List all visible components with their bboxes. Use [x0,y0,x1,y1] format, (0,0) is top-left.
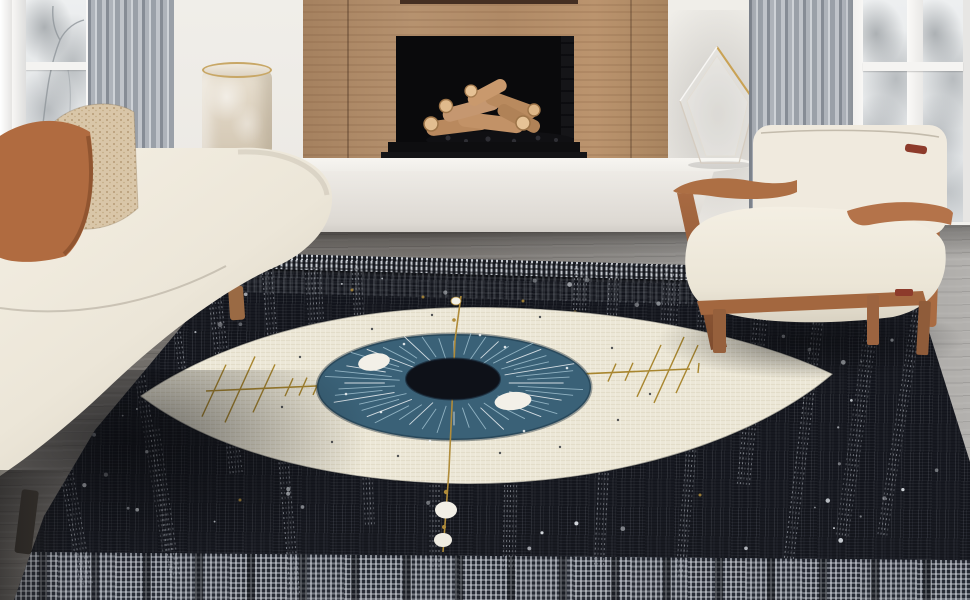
rug-star [533,279,537,283]
chair-rear-right-leg [916,301,931,356]
iris-dot [429,440,432,443]
wood-panel-seam [630,0,632,163]
iris-dot [523,430,526,433]
pupil [406,359,500,400]
cream-speck [649,393,651,395]
vase-gold-rim [202,62,272,78]
fireplace-top-trim [400,0,578,4]
rug-star [567,282,572,287]
cream-speck [559,446,561,448]
rug-star [620,526,625,531]
rug-star [574,521,578,525]
cream-speck [431,314,433,316]
cream-speck [499,452,501,454]
rug-star [935,468,939,472]
rug-star [585,277,590,282]
firebox [396,36,574,150]
window-right-bar [863,62,963,71]
armchair [635,95,970,375]
chair-front-right-leg [867,295,879,345]
cream-speck [371,328,373,330]
gold-fleck [699,494,702,497]
rug-star [838,462,841,465]
living-room-scene [0,0,970,600]
log-pile [424,77,542,137]
cream-speck [539,316,541,318]
rug-star [882,496,886,500]
rug-star [527,546,531,550]
rug-star [540,531,543,534]
rug-star [860,515,862,517]
cream-speck [397,455,399,457]
rug-star [443,290,447,294]
iris-dot [403,343,406,346]
rug-star [833,527,835,529]
firewood-logs [396,36,574,150]
rug-star [901,488,904,491]
cream-speck [617,419,619,421]
rug-star [826,498,830,502]
rug-star [838,538,843,543]
iris-dot [479,334,482,337]
gold-fleck [522,300,525,303]
rug-star [381,278,383,280]
corner-shadow [0,470,70,600]
iris-dot [566,367,569,370]
chair-red-accent [895,289,913,296]
rug-star [850,399,853,402]
cream-speck [611,347,613,349]
rug-star [837,426,839,428]
gold-fleck [422,296,425,299]
iris-dot [504,346,507,349]
rug-star [426,501,430,505]
window-left-mullion [26,62,88,70]
iris-dot [380,411,383,414]
rug-star [744,546,748,550]
rug-star [814,507,816,509]
chair-front-left-leg [713,309,726,353]
